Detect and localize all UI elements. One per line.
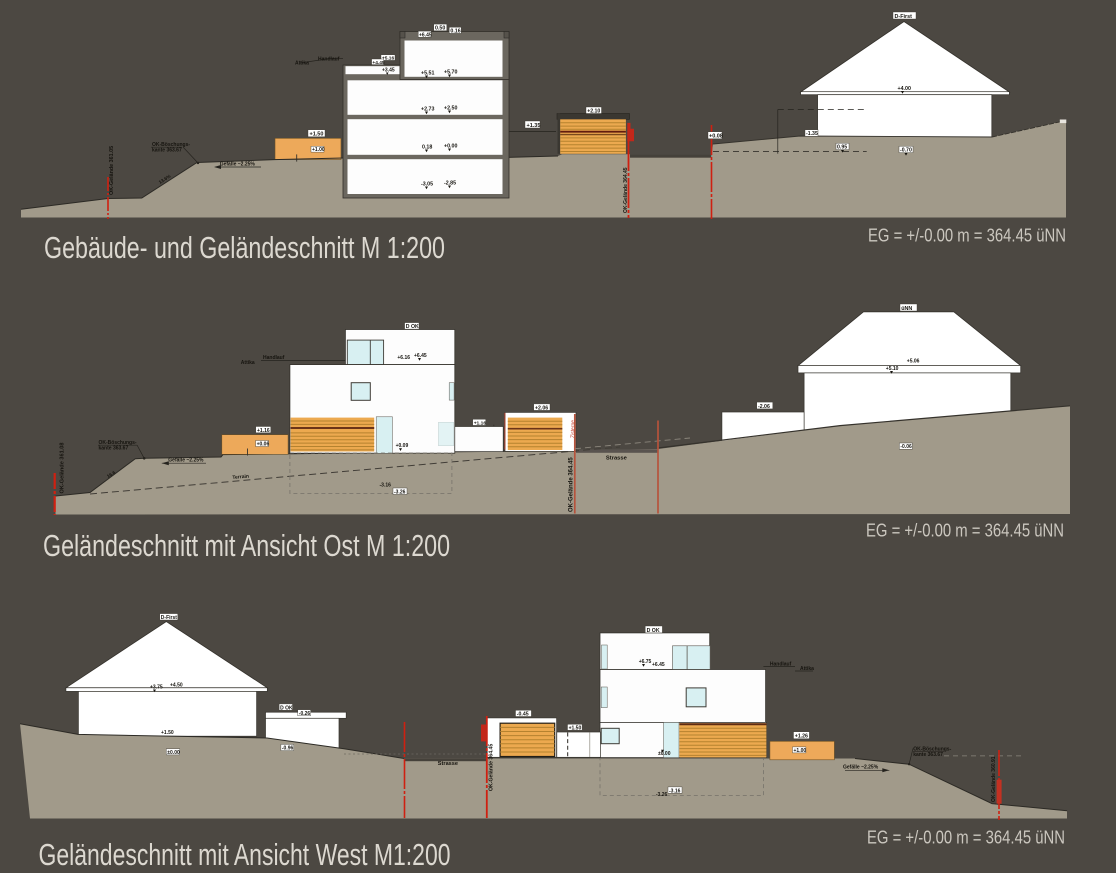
svg-text:-3.26: -3.26 [656,792,668,798]
svg-text:Attika: Attika [241,360,255,366]
svg-text:Strasse: Strasse [606,455,628,461]
svg-text:+1.16: +1.16 [257,428,270,434]
svg-text:+4.45: +4.45 [372,60,384,66]
svg-text:EG = +/-0.00 m = 364.45 üNN: EG = +/-0.00 m = 364.45 üNN [868,225,1066,246]
svg-text:+6.16: +6.16 [397,355,410,361]
svg-text:-0.96: -0.96 [282,746,294,752]
svg-text:+4.50: +4.50 [170,682,183,688]
svg-text:0.50: 0.50 [435,26,445,32]
svg-text:Handlauf: Handlauf [263,355,285,361]
svg-text:-0.26: -0.26 [299,711,311,717]
svg-text:Handlauf: Handlauf [770,662,792,668]
svg-text:EG = +/-0.00 m = 364.45 üNN: EG = +/-0.00 m = 364.45 üNN [867,827,1065,848]
svg-text:0.16: 0.16 [450,28,460,34]
svg-text:-1.35: -1.35 [806,131,818,137]
svg-text:+0.08: +0.08 [709,134,723,140]
svg-text:+1.26: +1.26 [795,734,808,740]
svg-text:+2.10: +2.10 [587,108,600,114]
svg-text:+4.00: +4.00 [898,86,911,92]
svg-text:+5.06: +5.06 [907,359,920,365]
svg-text:kante 363.67: kante 363.67 [913,752,943,758]
svg-text:+2.06: +2.06 [535,405,548,411]
svg-text:+1.50: +1.50 [161,730,174,736]
svg-text:D-First: D-First [895,14,913,20]
svg-text:Gefälle ~2.25%: Gefälle ~2.25% [168,458,204,464]
svg-text:D OK: D OK [280,705,293,711]
svg-text:OK-Gelände 364.45: OK-Gelände 364.45 [489,744,495,791]
svg-text:+3.75: +3.75 [150,685,163,691]
svg-text:OK-Gelände 364.45: OK-Gelände 364.45 [568,457,574,512]
svg-text:±0.00: ±0.00 [167,750,180,756]
svg-text:-0.45: -0.45 [517,712,529,718]
svg-text:-2.06: -2.06 [758,404,770,410]
svg-text:OK-Gelände 361.05: OK-Gelände 361.05 [109,146,115,195]
svg-text:-0.70: -0.70 [900,148,912,154]
svg-text:+1.16: +1.16 [474,421,487,427]
svg-text:OK-Gelände 360.91: OK-Gelände 360.91 [991,756,997,802]
svg-text:-3.26: -3.26 [394,489,406,495]
svg-text:+1.00: +1.00 [794,748,807,754]
svg-text:+1.00: +1.00 [312,147,325,153]
svg-text:Handlauf: Handlauf [318,57,340,63]
svg-text:D OK: D OK [647,628,660,634]
svg-text:+6.45: +6.45 [419,32,432,38]
svg-text:+1.50: +1.50 [310,132,324,138]
svg-text:Attika: Attika [295,61,309,67]
svg-text:OK-Gelände 364.45: OK-Gelände 364.45 [623,167,629,213]
svg-text:-0.06: -0.06 [900,444,912,450]
svg-text:D OK: D OK [406,324,419,330]
svg-text:Strasse: Strasse [438,761,458,767]
svg-text:OK-Gelände 361.08: OK-Gelände 361.08 [60,443,66,494]
svg-text:+0.09: +0.09 [396,443,409,449]
svg-text:+1.50: +1.50 [569,725,582,731]
svg-text:+0.06: +0.06 [257,442,270,448]
svg-text:Gefälle ~2.25%: Gefälle ~2.25% [843,765,879,771]
svg-text:0.95: 0.95 [837,145,847,151]
svg-text:kante 363.67: kante 363.67 [152,148,182,154]
svg-text:EG = +/-0.00 m = 364.45 üNN: EG = +/-0.00 m = 364.45 üNN [866,520,1064,541]
svg-text:Geländeschnitt mit Ansicht Wes: Geländeschnitt mit Ansicht West M1:200 [39,837,451,872]
svg-text:±0.00: ±0.00 [658,751,671,757]
svg-text:Gebäude- und Geländeschnitt M: Gebäude- und Geländeschnitt M 1:200 [44,230,445,265]
svg-text:kante 363.67: kante 363.67 [99,446,129,452]
svg-text:Geländeschnitt mit Ansicht Ost: Geländeschnitt mit Ansicht Ost M 1:200 [43,528,450,563]
svg-text:+6.45: +6.45 [652,662,665,668]
svg-text:üNN: üNN [901,306,912,312]
svg-text:-3.16: -3.16 [669,788,681,794]
svg-text:D-First: D-First [161,615,177,621]
svg-text:+6.75: +6.75 [639,659,652,665]
svg-text:-3.16: -3.16 [380,483,392,489]
svg-text:+1.35: +1.35 [527,123,541,129]
